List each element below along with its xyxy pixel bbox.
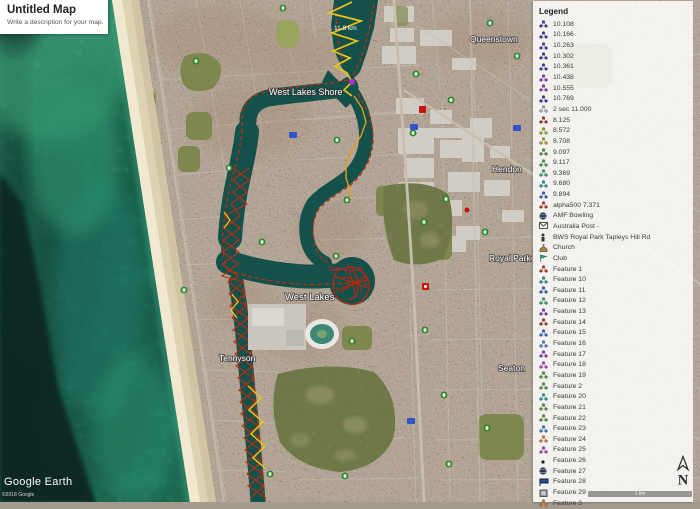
svg-text:Royal Park: Royal Park: [489, 253, 531, 263]
svg-text:Sailing Club: Sailing Club: [328, 266, 363, 273]
svg-text:West Lakes Shore: West Lakes Shore: [269, 87, 342, 97]
svg-text:Hendon: Hendon: [492, 164, 522, 174]
svg-text:N: N: [678, 473, 689, 488]
svg-text:Seaton: Seaton: [498, 363, 525, 373]
svg-text:Tennyson: Tennyson: [219, 353, 256, 363]
svg-text:Queenstown: Queenstown: [470, 34, 518, 44]
svg-text:West Lakes: West Lakes: [285, 292, 335, 303]
svg-text:11.8 km: 11.8 km: [334, 25, 357, 32]
